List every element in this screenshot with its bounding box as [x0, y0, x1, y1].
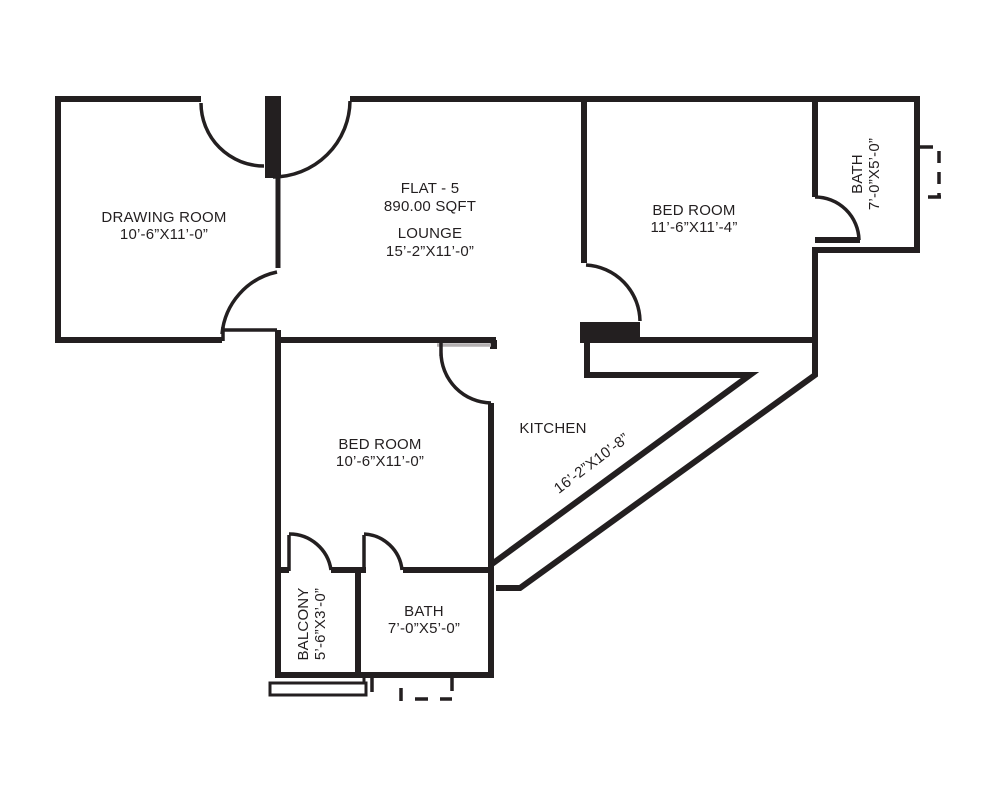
- balcony-railing-rect: [270, 683, 366, 695]
- label-lounge: LOUNGE 15’-2”X11’-0”: [386, 225, 474, 261]
- bedroom-top-door-arc: [586, 265, 640, 321]
- bedroom-top-dims: 11’-6”X11’-4”: [650, 219, 737, 236]
- bath-bottom-door-arc: [364, 534, 402, 570]
- bath-top-dims: 7’-0”X5’-0”: [866, 138, 883, 210]
- drawing-room-door-leaf: [222, 327, 277, 341]
- flat-title: FLAT - 5: [384, 180, 476, 198]
- flat-area: 890.00 SQFT: [384, 198, 476, 216]
- kitchen-name: KITCHEN: [519, 420, 586, 438]
- label-bedroom-top: BED ROOM 11’-6”X11’-4”: [650, 202, 737, 236]
- balcony-railing: [270, 678, 366, 695]
- wall-outer-right: [350, 99, 917, 588]
- bedroom-mid-dims: 10’-6”X11’-0”: [336, 453, 424, 470]
- floor-plan-drawing: [0, 0, 1000, 800]
- doors: [201, 101, 859, 571]
- walls: [58, 96, 917, 675]
- label-bath-bottom: BATH 7’-0”X5’-0”: [388, 603, 460, 637]
- lounge-name: LOUNGE: [386, 225, 474, 243]
- bath-bottom-dims: 7’-0”X5’-0”: [388, 620, 460, 637]
- balcony-door-arc: [289, 534, 331, 570]
- bedroom-top-name: BED ROOM: [650, 202, 737, 219]
- drawing-room-dims: 10’-6”X11’-0”: [101, 226, 226, 243]
- entrance-door-right-arc: [273, 101, 350, 177]
- bath-bottom-name: BATH: [388, 603, 460, 620]
- bath-top-name: BATH: [849, 138, 866, 210]
- bedroom-mid-door-arc: [441, 343, 491, 403]
- label-bath-top: BATH 7’-0”X5’-0”: [849, 138, 883, 210]
- bath-bottom-window-ticks: [372, 678, 452, 692]
- wall-entrance-stub: [265, 96, 281, 178]
- entrance-door-left-arc: [201, 103, 264, 166]
- lounge-dims: 15’-2”X11’-0”: [386, 243, 474, 261]
- floor-plan: DRAWING ROOM 10’-6”X11’-0” FLAT - 5 890.…: [0, 0, 1000, 800]
- drawing-room-door-arc: [222, 272, 277, 334]
- drawing-room-name: DRAWING ROOM: [101, 209, 226, 226]
- label-bedroom-mid: BED ROOM 10’-6”X11’-0”: [336, 436, 424, 470]
- label-flat: FLAT - 5 890.00 SQFT: [384, 180, 476, 216]
- label-balcony: BALCONY 5’-6”X3’-0”: [295, 587, 329, 660]
- bedroom-mid-name: BED ROOM: [336, 436, 424, 453]
- label-drawing-room: DRAWING ROOM 10’-6”X11’-0”: [101, 209, 226, 243]
- bath-bottom-window-dashes: [401, 688, 452, 701]
- balcony-dims: 5’-6”X3’-0”: [312, 587, 329, 660]
- wall-endcap: [490, 340, 497, 349]
- balcony-name: BALCONY: [295, 587, 312, 660]
- label-kitchen: KITCHEN: [519, 420, 586, 438]
